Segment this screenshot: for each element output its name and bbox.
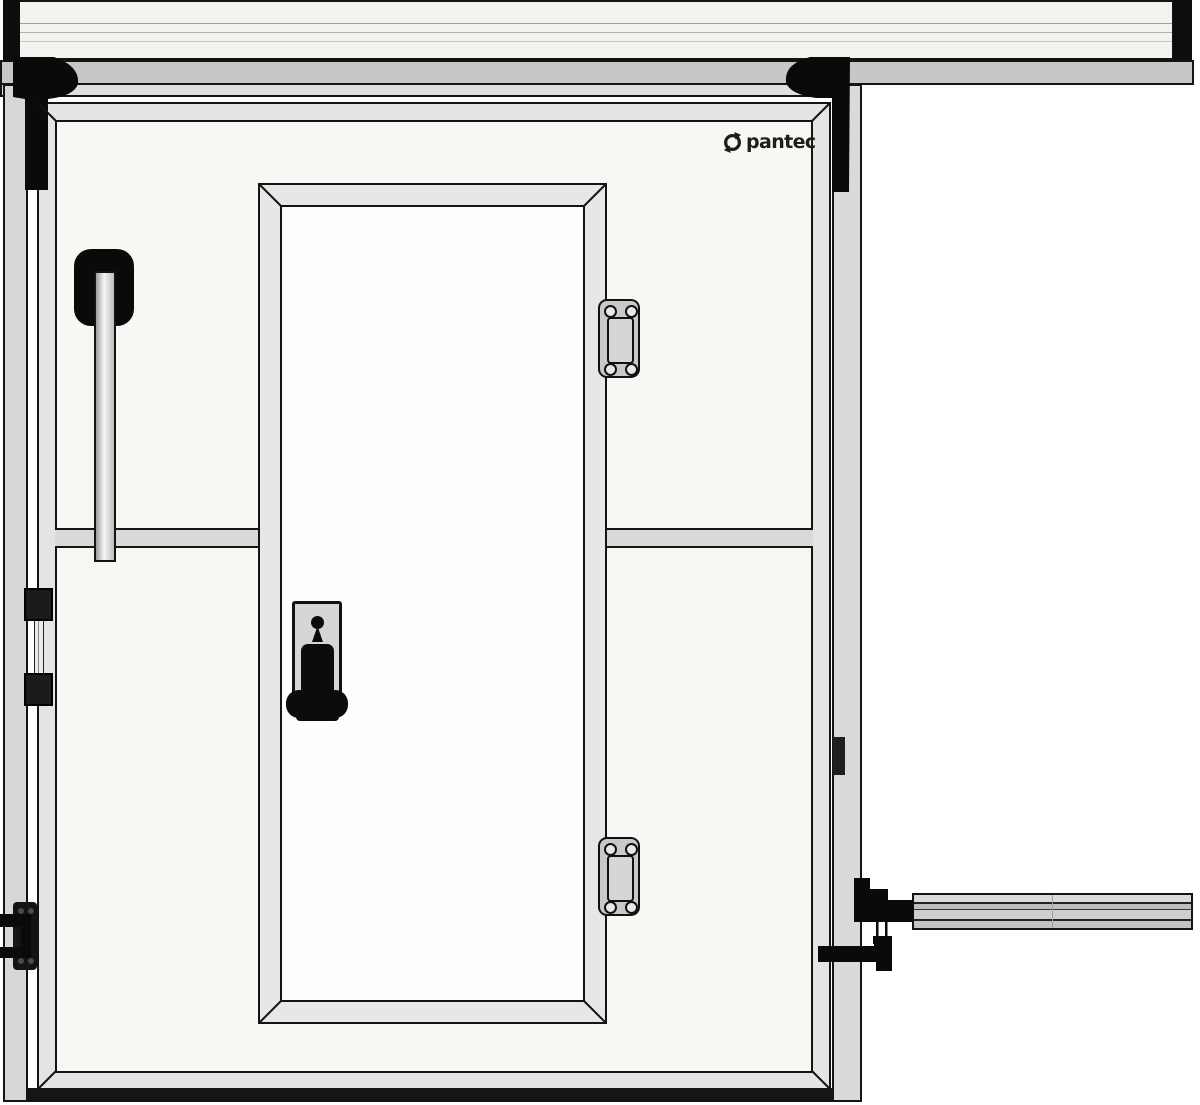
screw-icon xyxy=(604,305,617,318)
circular-arrow-icon xyxy=(722,132,743,153)
rail-groove-line xyxy=(20,41,1172,42)
pull-handle-rod xyxy=(94,271,116,562)
screw-icon xyxy=(625,363,638,376)
screw-icon xyxy=(604,901,617,914)
pass-door-lock-knob xyxy=(296,712,339,721)
rail-end-cap-left xyxy=(3,0,20,62)
rail-end-cap-right xyxy=(1173,0,1192,60)
hinge-barrel xyxy=(607,317,634,364)
push-bar xyxy=(912,893,1193,930)
screw-icon xyxy=(604,843,617,856)
pass-door-hinge-bottom xyxy=(598,837,640,916)
column-stop-block xyxy=(833,737,845,775)
right-guide-column xyxy=(832,84,862,1102)
panel-seam-right xyxy=(607,528,813,548)
rail-groove-line xyxy=(20,32,1172,33)
hinge-barrel xyxy=(607,855,634,902)
jamb-keeper-block-bottom xyxy=(24,673,53,706)
brand-logo: pantec xyxy=(722,130,816,154)
top-rail-beam xyxy=(18,0,1174,60)
screw-icon xyxy=(604,363,617,376)
push-bar-joint-line xyxy=(1052,895,1053,928)
screw-icon xyxy=(625,843,638,856)
brand-logo-text: pantec xyxy=(746,133,816,152)
panel-seam-left xyxy=(55,528,258,548)
floor-gasket-strip xyxy=(28,1088,832,1102)
screw-icon xyxy=(625,901,638,914)
rail-groove-line xyxy=(20,23,1172,24)
track-cover-profile xyxy=(0,83,862,97)
jamb-keeper-block-top xyxy=(24,588,53,621)
sliding-door-diagram: pantec xyxy=(0,0,1200,1105)
pin-highlight-line xyxy=(38,621,39,673)
track-support-profile xyxy=(0,60,1194,85)
pass-door-hinge-top xyxy=(598,299,640,378)
screw-icon xyxy=(625,305,638,318)
jamb-keeper-pin xyxy=(34,620,44,674)
